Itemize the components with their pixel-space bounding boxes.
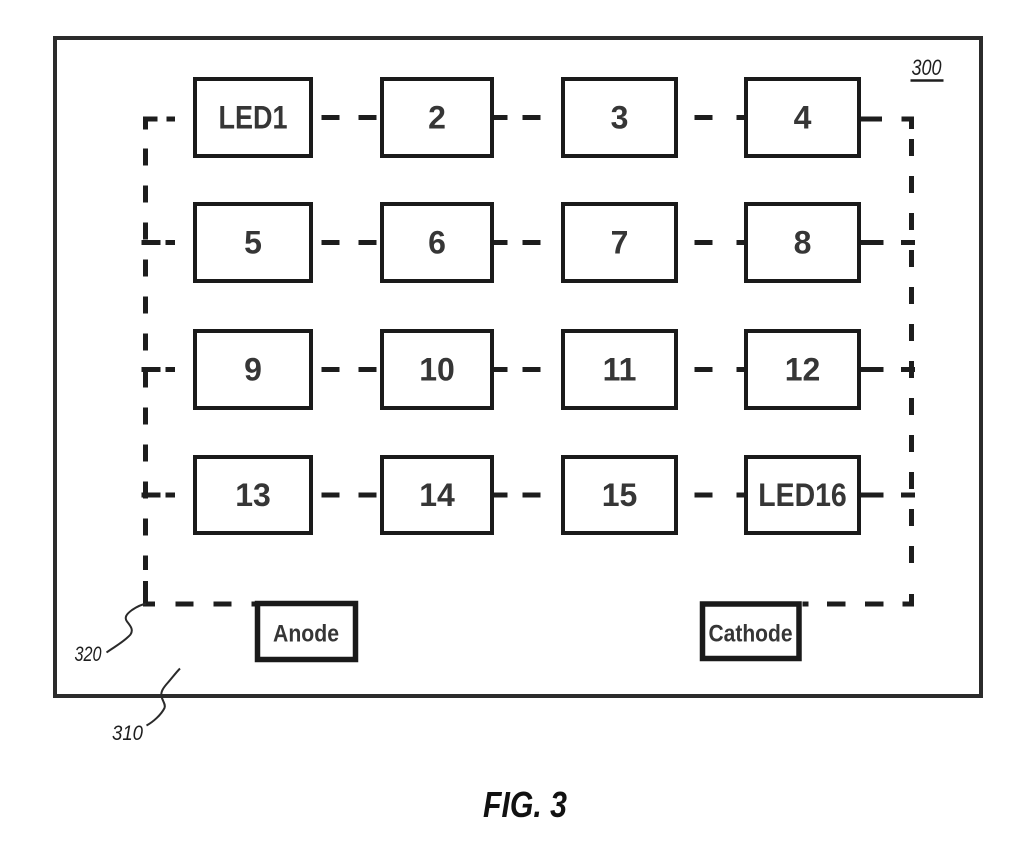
- svg-text:300: 300: [912, 55, 943, 80]
- svg-text:LED16: LED16: [758, 477, 847, 513]
- svg-text:15: 15: [602, 477, 638, 513]
- svg-text:FIG. 3: FIG. 3: [483, 784, 567, 825]
- svg-text:320: 320: [75, 643, 102, 666]
- svg-text:2: 2: [428, 100, 446, 136]
- svg-text:3: 3: [611, 100, 629, 136]
- svg-text:LED1: LED1: [219, 100, 288, 136]
- svg-text:4: 4: [794, 100, 812, 136]
- svg-text:5: 5: [244, 225, 262, 261]
- svg-text:Anode: Anode: [273, 621, 339, 648]
- svg-text:Cathode: Cathode: [709, 621, 793, 648]
- svg-text:13: 13: [235, 477, 271, 513]
- svg-text:12: 12: [785, 352, 821, 388]
- svg-text:14: 14: [419, 477, 455, 513]
- svg-text:11: 11: [603, 352, 637, 388]
- svg-text:7: 7: [611, 225, 629, 261]
- svg-text:8: 8: [794, 225, 812, 261]
- svg-text:9: 9: [244, 352, 262, 388]
- svg-text:310: 310: [112, 722, 143, 745]
- svg-text:6: 6: [428, 225, 446, 261]
- svg-text:10: 10: [419, 352, 455, 388]
